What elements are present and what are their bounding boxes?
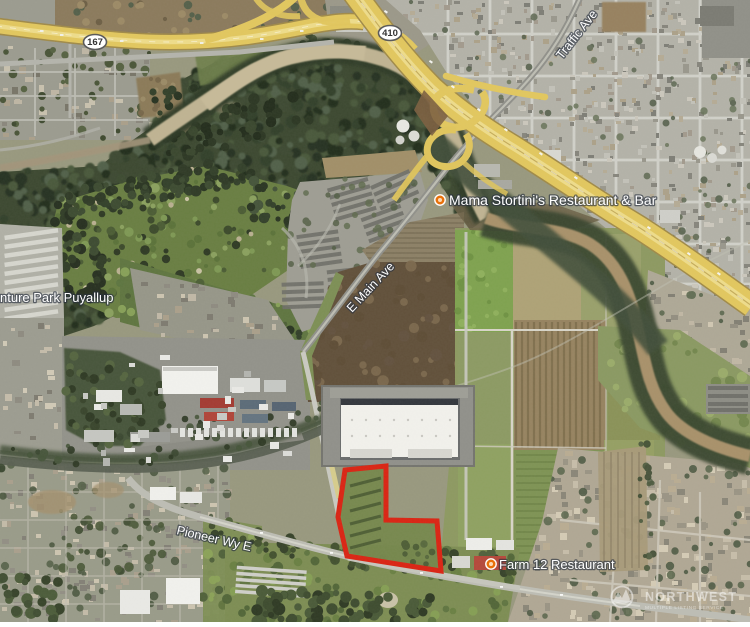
svg-text:Farm 12 Restaurant: Farm 12 Restaurant xyxy=(499,557,615,572)
svg-text:NORTHWEST: NORTHWEST xyxy=(645,590,737,604)
svg-text:410: 410 xyxy=(382,28,398,39)
svg-text:nture Park Puyallup: nture Park Puyallup xyxy=(0,290,113,305)
svg-text:MULTIPLE LISTING SERVICE: MULTIPLE LISTING SERVICE xyxy=(645,605,724,611)
svg-text:Mama Stortini's Restaurant & B: Mama Stortini's Restaurant & Bar xyxy=(449,192,657,208)
svg-text:167: 167 xyxy=(87,37,103,48)
